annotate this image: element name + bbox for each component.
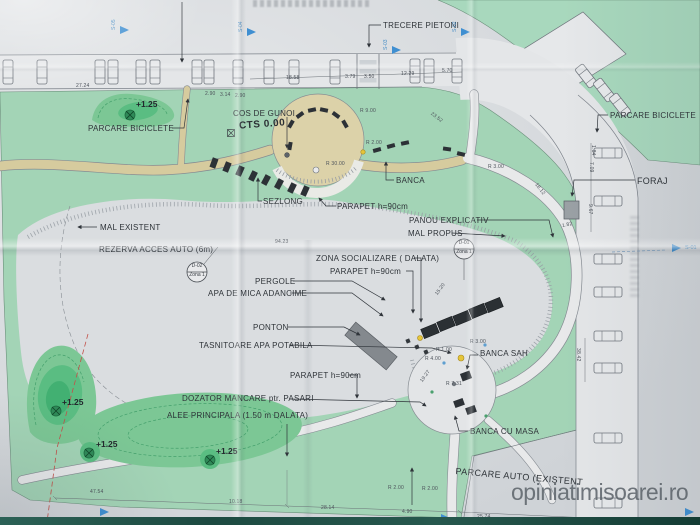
flag-label-s05: S-05 — [111, 19, 117, 30]
dimension: 10.18 — [229, 499, 243, 505]
label-banca: BANCA — [396, 176, 425, 185]
watermark: opiniatimisoarei.ro — [511, 479, 688, 506]
radius-note: R 9.00 — [360, 108, 376, 114]
label-dozator: DOZATOR MANCARE ptr. PASARI — [182, 394, 314, 403]
label-zona-socializare: ZONA SOCIALIZARE ( DALATA) — [316, 254, 439, 263]
label-banca-sah: BANCA SAH — [480, 349, 528, 358]
label-foraj: FORAJ — [637, 176, 668, 186]
detail-d01-zone: Zona 1 — [453, 249, 475, 255]
label-alee-principala: ALEE PRINCIPALA (1.50 m DALATA) — [167, 411, 308, 420]
detail-d01-code: D-01 — [453, 240, 475, 246]
dimension: 7.09 — [588, 162, 594, 173]
radius-note: R 2.00 — [366, 140, 382, 146]
label-banca-cu-masa: BANCA CU MASA — [470, 427, 539, 436]
dimension: 1.84 — [590, 145, 596, 156]
flag-label-s03: S-03 — [383, 39, 389, 50]
label-rezerva-acces-auto: REZERVA ACCES AUTO (6m) — [99, 245, 213, 254]
label-tasnitoare: TASNITOARE APA POTABILA — [199, 341, 313, 350]
top-road — [0, 69, 460, 72]
dimension: 2.90 — [235, 93, 246, 99]
label-cos-de-gunoi: COS DE GUNOI — [233, 109, 295, 118]
spot-level: +1.25 — [136, 99, 158, 109]
label-panou-explicativ: PANOU EXPLICATIV — [409, 216, 489, 225]
dimension: 9.67 — [587, 204, 593, 215]
label-parapet-3: PARAPET h=90cm — [290, 371, 361, 380]
label-parapet-1: PARAPET h=90cm — [337, 202, 408, 211]
radius-note: R 3.00 — [470, 339, 486, 345]
illegible-text-smudge — [253, 0, 371, 7]
dimension: 3.79 — [345, 74, 356, 80]
label-pergole: PERGOLE — [255, 277, 295, 286]
label-apa-de-mica-adancime: APA DE MICA ADANCIME — [208, 289, 307, 298]
radius-note: R 2.00 — [422, 486, 438, 492]
label-trecere-pietoni: TRECERE PIETONI — [383, 21, 459, 30]
label-parapet-2: PARAPET h=90cm — [330, 267, 401, 276]
label-ponton: PONTON — [253, 323, 289, 332]
dimension: 18.58 — [286, 75, 300, 81]
radius-note: R 4.00 — [425, 356, 441, 362]
plan-photo: TRECERE PIETONI PARCARE BICICLETE COS DE… — [0, 0, 700, 525]
radius-note: R 2.00 — [388, 485, 404, 491]
dimension: 5.70 — [442, 68, 453, 74]
trash-bin-marker — [285, 153, 290, 158]
label-parcare-biciclete-right: PARCARE BICICLETE — [610, 111, 696, 120]
dimension: 27.24 — [76, 83, 90, 89]
dimension: 4.90 — [402, 509, 413, 515]
label-mal-propus: MAL PROPUS — [408, 229, 463, 238]
label-mal-existent: MAL EXISTENT — [100, 223, 161, 232]
foraj-marker — [564, 201, 579, 219]
detail-d02-code: D-02 — [186, 263, 208, 269]
radius-note: R 30.00 — [326, 161, 345, 167]
flag-label-s02: S-02 — [452, 21, 458, 32]
dimension: 28.14 — [321, 505, 335, 511]
label-parcare-biciclete-left: PARCARE BICICLETE — [88, 124, 174, 133]
dimension: 38.42 — [575, 348, 581, 362]
flag-label-s01: S-01 — [685, 245, 697, 251]
radius-note: R 1.00 — [436, 347, 452, 353]
dimension: 94.23 — [275, 239, 289, 245]
dimension: 3.14 — [220, 92, 231, 98]
radius-note: R 7.31 — [446, 381, 462, 387]
dimension: 3.50 — [364, 74, 375, 80]
dimension: 47.54 — [90, 489, 104, 495]
detail-d02-zone: Zona 1 — [186, 272, 208, 278]
dimension: 2.90 — [205, 91, 216, 97]
spot-level: +1.25 — [62, 397, 84, 407]
label-sezlong: SEZLONG — [263, 197, 303, 206]
spot-level: +1.25 — [96, 439, 118, 449]
flag-label-s04: S-04 — [238, 21, 244, 32]
dimension: 12.29 — [401, 71, 415, 77]
spot-level: +1.25 — [216, 446, 238, 456]
illegible-street-name-smudge — [630, 216, 639, 298]
photo-background-strip — [0, 517, 700, 525]
radius-note: R 3.00 — [488, 164, 504, 170]
